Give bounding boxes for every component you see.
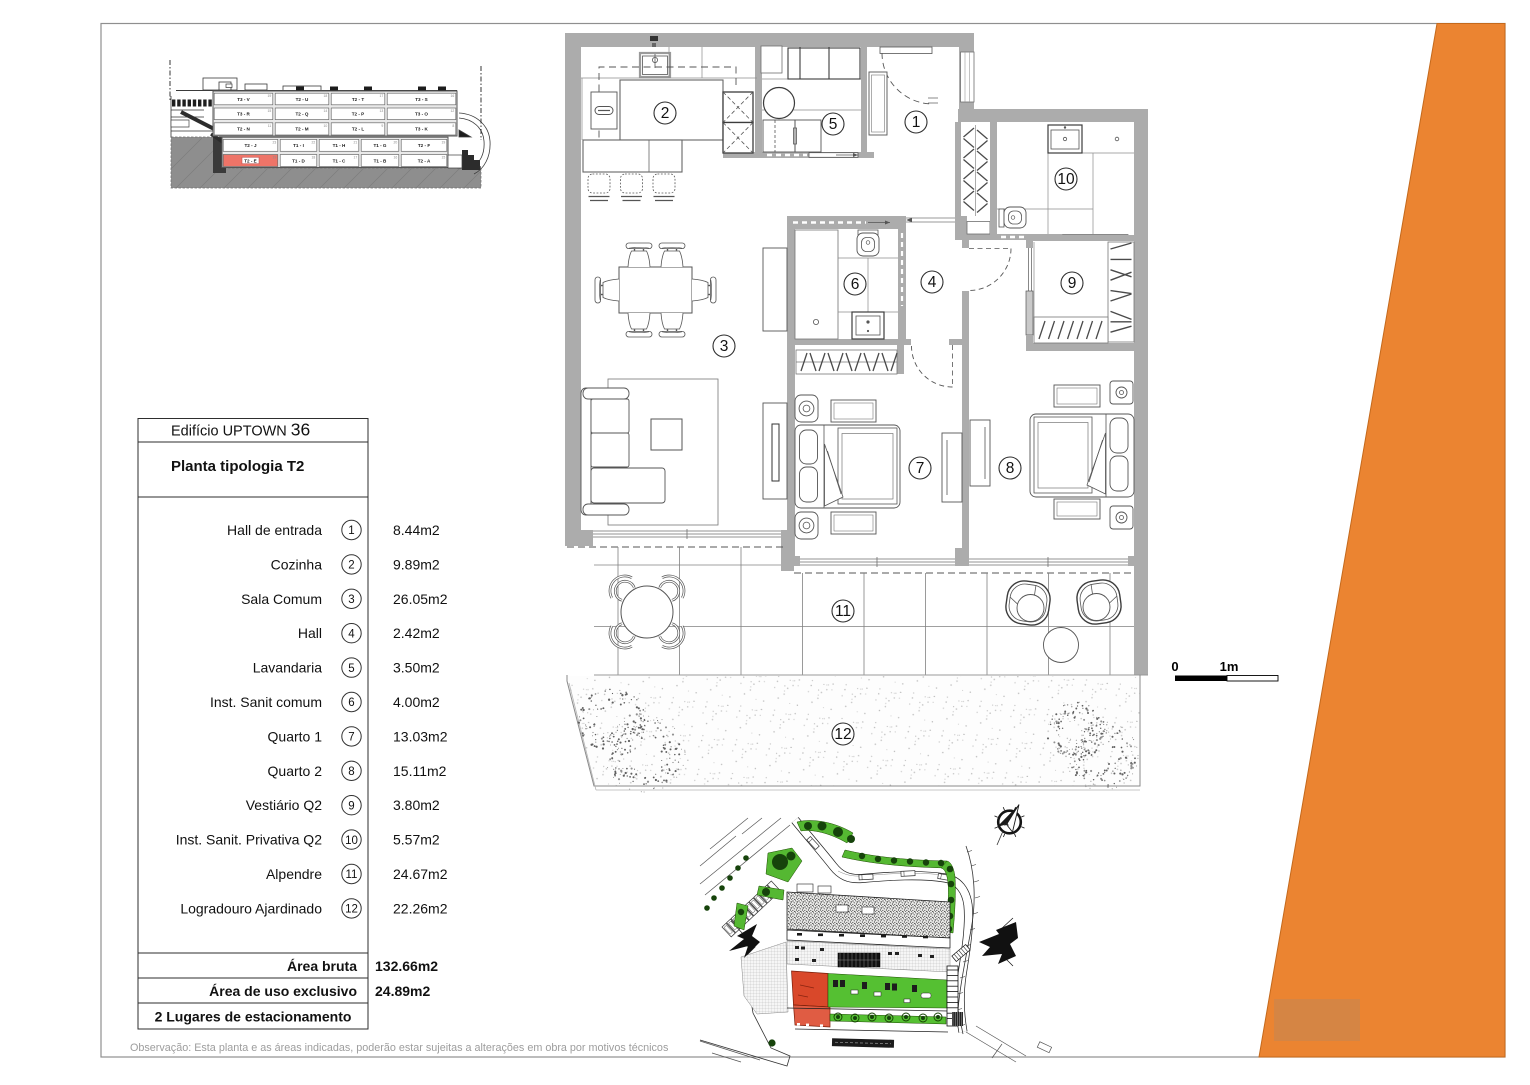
svg-text:19: 19: [273, 156, 277, 160]
svg-text:5.57m2: 5.57m2: [393, 832, 440, 848]
svg-text:24.67m2: 24.67m2: [393, 866, 448, 882]
svg-text:Inst. Sanit. Privativa Q2: Inst. Sanit. Privativa Q2: [176, 832, 322, 848]
svg-text:8: 8: [1006, 460, 1015, 477]
svg-text:3: 3: [720, 338, 729, 355]
svg-text:12: 12: [345, 904, 358, 916]
svg-text:Quarto 1: Quarto 1: [268, 728, 323, 744]
svg-text:8: 8: [348, 766, 354, 778]
svg-text:3.80m2: 3.80m2: [393, 797, 440, 813]
svg-text:1: 1: [912, 114, 921, 131]
svg-text:22: 22: [312, 140, 316, 144]
svg-text:22.26m2: 22.26m2: [393, 900, 448, 916]
svg-text:8: 8: [452, 124, 454, 128]
svg-text:5: 5: [829, 116, 838, 133]
svg-text:T2 - Q: T2 - Q: [295, 112, 308, 117]
svg-text:T2 - T: T2 - T: [352, 97, 364, 102]
svg-text:132.66m2: 132.66m2: [375, 958, 438, 974]
svg-text:13: 13: [380, 109, 384, 113]
svg-text:7: 7: [348, 732, 354, 744]
svg-text:18: 18: [312, 156, 316, 160]
svg-text:26.05m2: 26.05m2: [393, 591, 448, 607]
svg-text:17: 17: [380, 94, 384, 98]
svg-text:15: 15: [268, 109, 272, 113]
svg-text:T2 - L: T2 - L: [352, 127, 364, 132]
svg-text:T2 - E: T2 - E: [244, 158, 257, 163]
svg-text:2: 2: [661, 105, 670, 122]
svg-text:11: 11: [346, 869, 358, 881]
svg-text:3: 3: [348, 594, 354, 606]
svg-text:Cozinha: Cozinha: [271, 556, 323, 572]
svg-text:21: 21: [354, 140, 358, 144]
svg-text:16: 16: [451, 94, 455, 98]
svg-text:10: 10: [324, 124, 328, 128]
svg-text:T1 - B: T1 - B: [374, 158, 387, 163]
svg-text:16: 16: [394, 156, 398, 160]
svg-text:6: 6: [851, 276, 860, 293]
svg-text:T3 - O: T3 - O: [415, 112, 428, 117]
svg-text:Observação: Esta planta e as á: Observação: Esta planta e as áreas indic…: [130, 1042, 669, 1054]
svg-text:4.00m2: 4.00m2: [393, 694, 440, 710]
svg-text:15.11m2: 15.11m2: [393, 763, 447, 779]
svg-text:T1 - G: T1 - G: [373, 143, 386, 148]
svg-text:Hall: Hall: [298, 625, 322, 641]
svg-text:T1 - H: T1 - H: [333, 143, 346, 148]
svg-text:12: 12: [451, 109, 455, 113]
svg-text:T2 - U: T2 - U: [296, 97, 309, 102]
svg-text:Vestiário Q2: Vestiário Q2: [246, 797, 322, 813]
svg-text:12: 12: [834, 726, 851, 743]
svg-text:10: 10: [1057, 171, 1075, 188]
svg-text:9.89m2: 9.89m2: [393, 556, 440, 572]
svg-text:T2 - A: T2 - A: [418, 158, 431, 163]
svg-text:19: 19: [268, 94, 272, 98]
svg-text:Logradouro Ajardinado: Logradouro Ajardinado: [180, 900, 322, 916]
svg-text:0: 0: [1171, 659, 1178, 674]
svg-text:5: 5: [348, 663, 354, 675]
svg-text:T2 - F: T2 - F: [418, 143, 430, 148]
svg-text:14: 14: [324, 109, 328, 113]
svg-text:Quarto 2: Quarto 2: [268, 763, 323, 779]
svg-text:T3 - V: T3 - V: [237, 97, 250, 102]
svg-text:10: 10: [345, 835, 358, 847]
svg-text:9: 9: [348, 800, 354, 812]
svg-text:Área de uso exclusivo: Área de uso exclusivo: [209, 983, 357, 999]
svg-text:Inst. Sanit comum: Inst. Sanit comum: [210, 694, 322, 710]
svg-text:9: 9: [381, 124, 383, 128]
svg-text:17: 17: [354, 156, 358, 160]
svg-text:Sala Comum: Sala Comum: [241, 591, 322, 607]
svg-text:T1 - I: T1 - I: [293, 143, 304, 148]
svg-text:T3 - S: T3 - S: [415, 97, 428, 102]
svg-text:Planta tipologia T2: Planta tipologia T2: [171, 458, 304, 475]
svg-text:20: 20: [394, 140, 398, 144]
svg-text:T2 - N: T2 - N: [237, 127, 250, 132]
svg-text:T1 - C: T1 - C: [333, 158, 346, 163]
svg-text:1: 1: [348, 525, 354, 537]
svg-text:15: 15: [442, 156, 446, 160]
svg-text:T3 - K: T3 - K: [415, 127, 428, 132]
svg-text:T1 - D: T1 - D: [292, 158, 305, 163]
svg-text:1m: 1m: [1220, 659, 1239, 674]
svg-text:Lavandaria: Lavandaria: [253, 660, 322, 676]
svg-text:T3 - R: T3 - R: [237, 112, 250, 117]
svg-text:4: 4: [348, 628, 355, 640]
svg-text:8.44m2: 8.44m2: [393, 522, 440, 538]
svg-text:Alpendre: Alpendre: [266, 866, 322, 882]
svg-text:18: 18: [324, 94, 328, 98]
svg-text:7: 7: [916, 460, 925, 477]
svg-text:19: 19: [442, 140, 446, 144]
svg-text:T2 - P: T2 - P: [352, 112, 365, 117]
svg-text:T2 - M: T2 - M: [295, 127, 308, 132]
svg-text:2.42m2: 2.42m2: [393, 625, 440, 641]
svg-text:11: 11: [835, 603, 851, 620]
svg-text:24.89m2: 24.89m2: [375, 983, 430, 999]
svg-text:4: 4: [928, 274, 937, 291]
svg-text:Área bruta: Área bruta: [287, 958, 357, 974]
svg-text:2: 2: [348, 560, 354, 572]
svg-text:11: 11: [268, 124, 272, 128]
svg-text:9: 9: [1068, 275, 1077, 292]
svg-text:2 Lugares de estacionamento: 2 Lugares de estacionamento: [155, 1009, 352, 1025]
svg-text:6: 6: [348, 697, 354, 709]
svg-text:T2 - J: T2 - J: [245, 143, 257, 148]
svg-text:13.03m2: 13.03m2: [393, 728, 448, 744]
svg-text:Hall de entrada: Hall de entrada: [227, 522, 322, 538]
svg-text:23: 23: [273, 140, 277, 144]
svg-text:3.50m2: 3.50m2: [393, 660, 440, 676]
